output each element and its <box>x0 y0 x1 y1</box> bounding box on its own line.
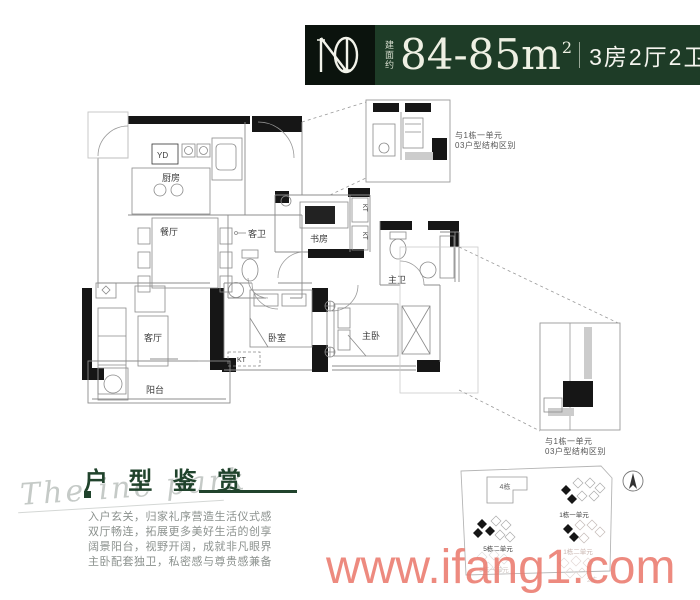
bedroom-label: 卧室 <box>268 332 286 343</box>
paragraph-line: 双厅畅连，拓展更多美好生活的创享 <box>88 525 288 540</box>
paragraph-line: 阔景阳台，视野开阔，成就非凡眼界 <box>88 540 288 555</box>
title-dot <box>84 491 91 498</box>
kt-tag-1: KT <box>361 204 367 212</box>
description-paragraph: 入户玄关，归家礼序营造生活仪式感 双厅畅连，拓展更多美好生活的创享 阔景阳台，视… <box>88 510 288 570</box>
site-label-b4: 4栋 <box>500 482 511 491</box>
kitchen-label: 厨房 <box>162 172 180 183</box>
guest-bath-label: 客卫 <box>248 228 266 239</box>
site-label-u1a: 1栋一单元 <box>559 510 589 519</box>
room-labels: 厨房 餐厅 客厅 阳台 客卫 书房 卧室 主卧 主卫 YD KT KT KT <box>144 151 406 395</box>
wall-lines <box>88 112 459 403</box>
cluster-u5b <box>473 516 515 542</box>
kt-tag-3: KT <box>237 357 247 364</box>
watermark: www.ifang1.com <box>326 540 675 595</box>
page: 建面约 84-85m2 3房2厅2卫 <box>0 0 700 600</box>
paragraph-line: 入户玄关，归家礼序营造生活仪式感 <box>88 510 288 525</box>
study-label: 书房 <box>310 233 328 244</box>
north-compass-icon <box>623 471 643 491</box>
kt-tag-2: KT <box>361 232 367 240</box>
title-underline <box>199 490 297 493</box>
cluster-u1a <box>561 478 605 504</box>
callout-top-line1: 与1栋一单元 <box>455 131 516 141</box>
callout-bottom: 与1栋一单元 03户型结构区别 <box>545 437 606 457</box>
master-bath-label: 主卫 <box>388 274 406 285</box>
inset-top <box>302 100 450 195</box>
paragraph-line: 主卧配套独卫，私密感与尊贵感兼备 <box>88 555 288 570</box>
callout-bottom-line1: 与1栋一单元 <box>545 437 606 447</box>
callout-bottom-line2: 03户型结构区别 <box>545 447 606 457</box>
yd-tag: YD <box>157 151 168 160</box>
callout-top-line2: 03户型结构区别 <box>455 141 516 151</box>
dining-label: 餐厅 <box>160 226 178 237</box>
living-label: 客厅 <box>144 332 162 343</box>
inset-bottom <box>400 247 620 431</box>
callout-top: 与1栋一单元 03户型结构区别 <box>455 131 516 151</box>
balcony-label: 阳台 <box>146 384 164 395</box>
master-bedroom-label: 主卧 <box>362 330 380 341</box>
